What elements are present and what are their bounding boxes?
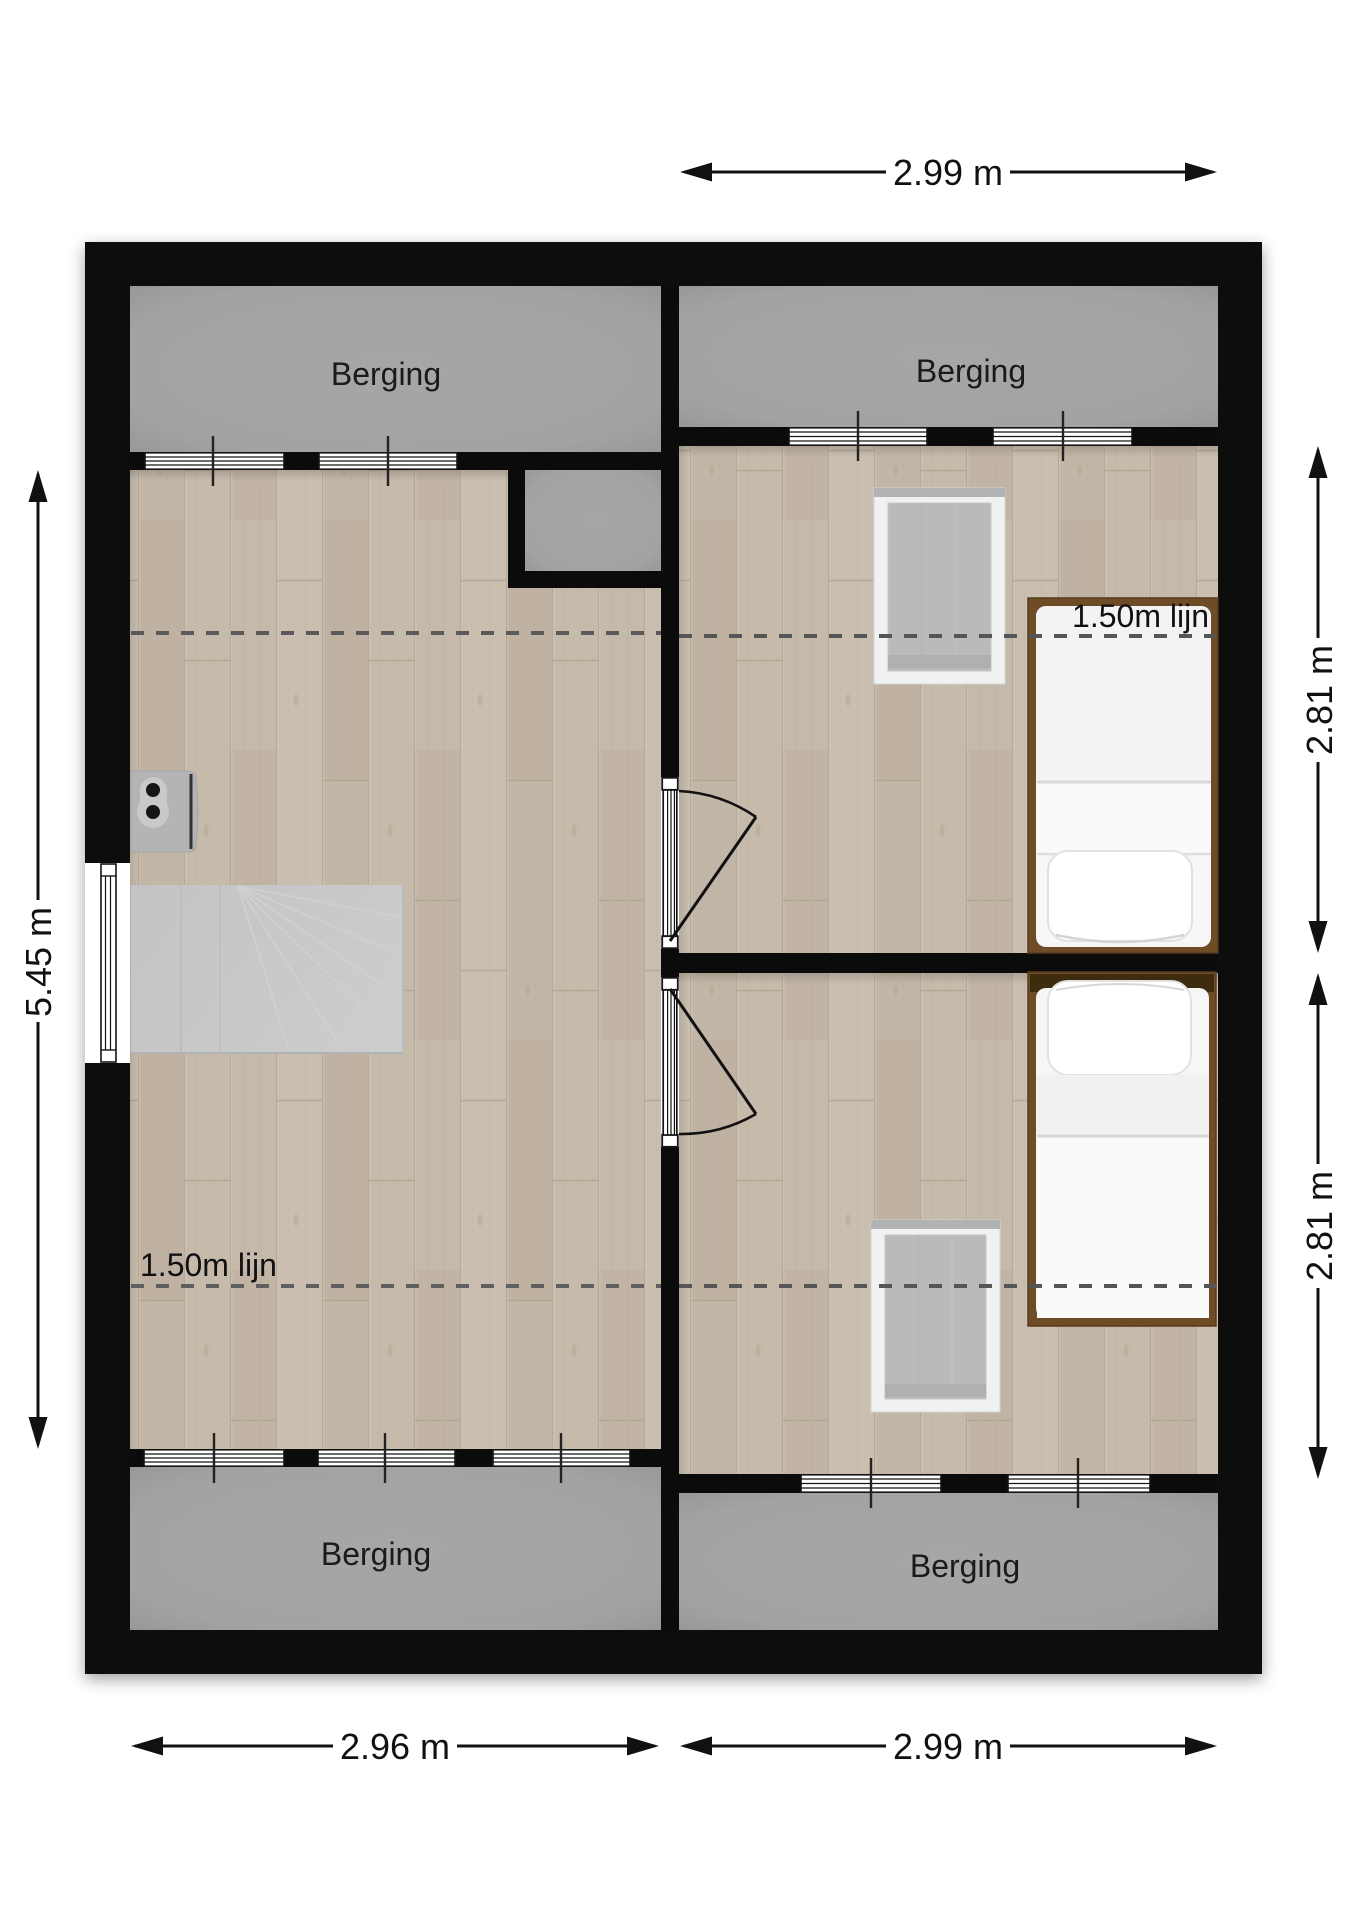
svg-text:1.50m lijn: 1.50m lijn	[140, 1247, 277, 1283]
svg-text:5.45 m: 5.45 m	[18, 907, 59, 1017]
svg-text:2.81 m: 2.81 m	[1299, 645, 1340, 755]
svg-text:Berging: Berging	[916, 353, 1026, 389]
svg-text:Berging: Berging	[910, 1548, 1020, 1584]
svg-text:1.50m lijn: 1.50m lijn	[1072, 598, 1209, 634]
svg-text:2.96 m: 2.96 m	[340, 1726, 450, 1767]
svg-text:2.99 m: 2.99 m	[893, 152, 1003, 193]
svg-text:2.81 m: 2.81 m	[1299, 1171, 1340, 1281]
svg-text:Berging: Berging	[321, 1536, 431, 1572]
svg-text:Berging: Berging	[331, 356, 441, 392]
svg-text:2.99 m: 2.99 m	[893, 1726, 1003, 1767]
